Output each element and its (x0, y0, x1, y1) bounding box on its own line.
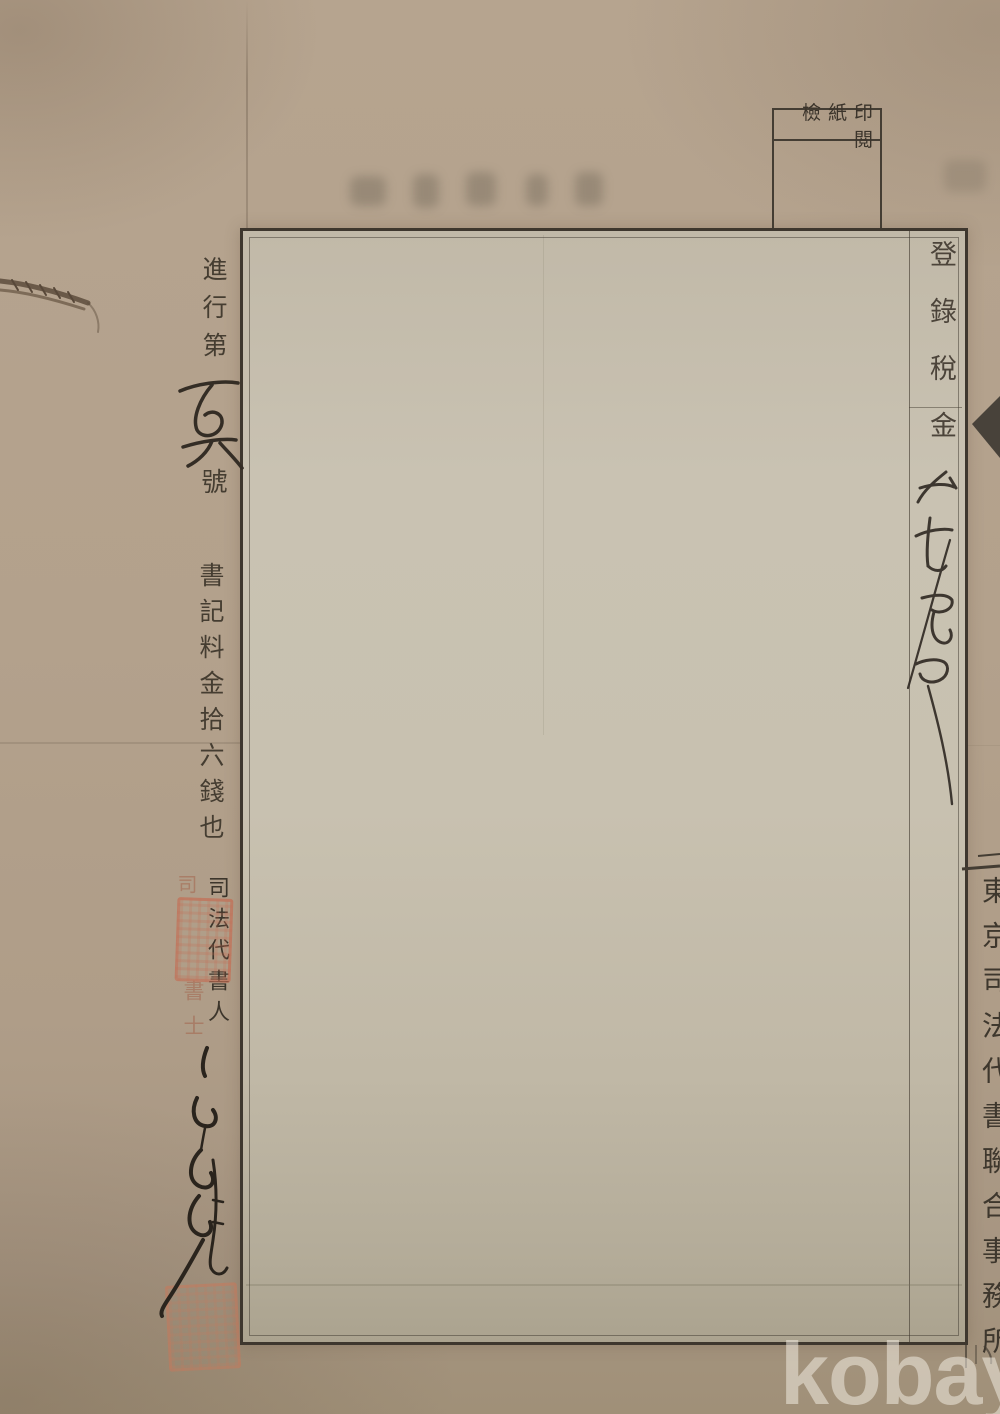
progress-number-prefix: 進行第 (195, 256, 231, 370)
registration-tax-label: 登錄稅金 (921, 240, 960, 468)
faint-red-stamp-char: 司 (172, 874, 201, 894)
ink-bleed-smudge (575, 172, 603, 206)
ink-bleed-smudge (413, 174, 439, 208)
sheet-crease (543, 235, 544, 735)
clerk-fee-line: 書記料金拾六錢也 (192, 562, 228, 850)
document-photo: 印紙檢閲 登錄稅金 進行第 號 書記料金拾六錢也 司法代書人 司 書士 東京司法… (0, 0, 1000, 1414)
tax-column-divider-line (909, 231, 910, 1342)
red-seal-stamp-upper (175, 897, 234, 983)
stamp-inspection-box: 印紙檢閲 (772, 108, 882, 228)
vertical-fold-crease (246, 0, 248, 228)
clip-shadow-wedge (972, 396, 1000, 458)
ink-bleed-smudge (466, 172, 496, 206)
document-frame (240, 228, 968, 1345)
stamp-inspection-label: 印紙檢閲 (774, 98, 880, 152)
binding-string-graphic (0, 280, 99, 332)
stamp-inspection-box-header: 印紙檢閲 (774, 110, 880, 141)
progress-number-suffix: 號 (194, 468, 231, 494)
handwritten-signature (161, 1048, 227, 1316)
site-watermark: kobay (780, 1330, 1000, 1414)
ink-bleed-smudge (944, 160, 986, 192)
ink-bleed-smudge (350, 176, 386, 206)
office-name-partial: 東京司法代書聯合事務所 (974, 876, 1000, 1371)
handwritten-progress-number (180, 382, 242, 468)
ink-bleed-smudge (526, 174, 548, 206)
inner-sheet-edge (246, 1284, 962, 1286)
red-seal-stamp-lower (165, 1282, 241, 1372)
faint-red-stamp-chars: 書士 (178, 980, 208, 1050)
